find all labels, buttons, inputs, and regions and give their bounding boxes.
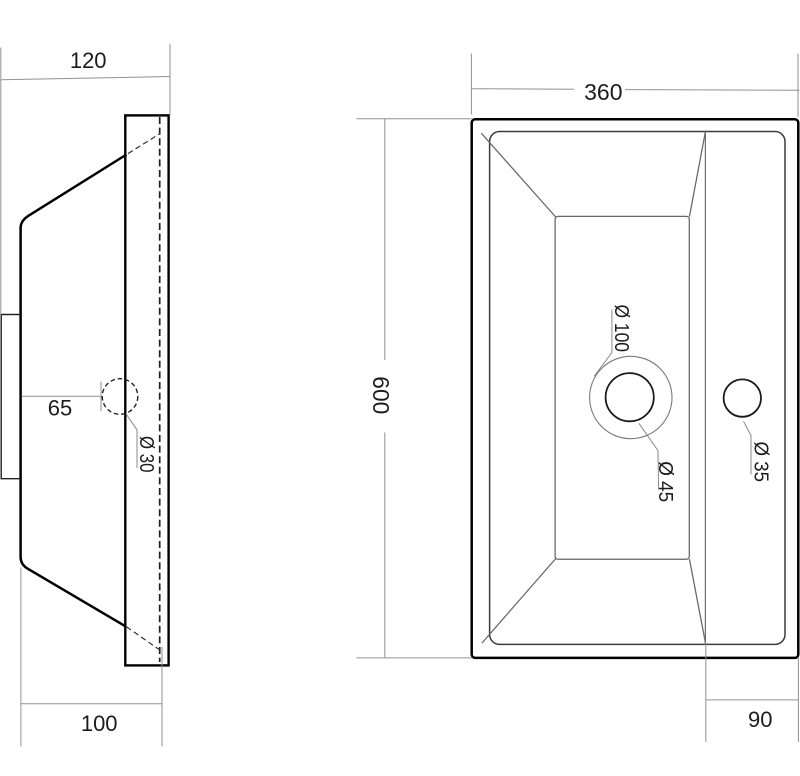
svg-text:600: 600 <box>368 376 394 414</box>
svg-text:100: 100 <box>81 711 118 736</box>
svg-text:Ø 45: Ø 45 <box>654 461 676 502</box>
svg-text:Ø 100: Ø 100 <box>610 305 632 353</box>
svg-text:65: 65 <box>48 396 72 421</box>
svg-text:360: 360 <box>584 79 622 105</box>
svg-text:Ø 35: Ø 35 <box>750 442 772 483</box>
svg-text:Ø 30: Ø 30 <box>135 436 157 473</box>
svg-text:90: 90 <box>748 707 772 732</box>
svg-text:120: 120 <box>70 48 107 73</box>
